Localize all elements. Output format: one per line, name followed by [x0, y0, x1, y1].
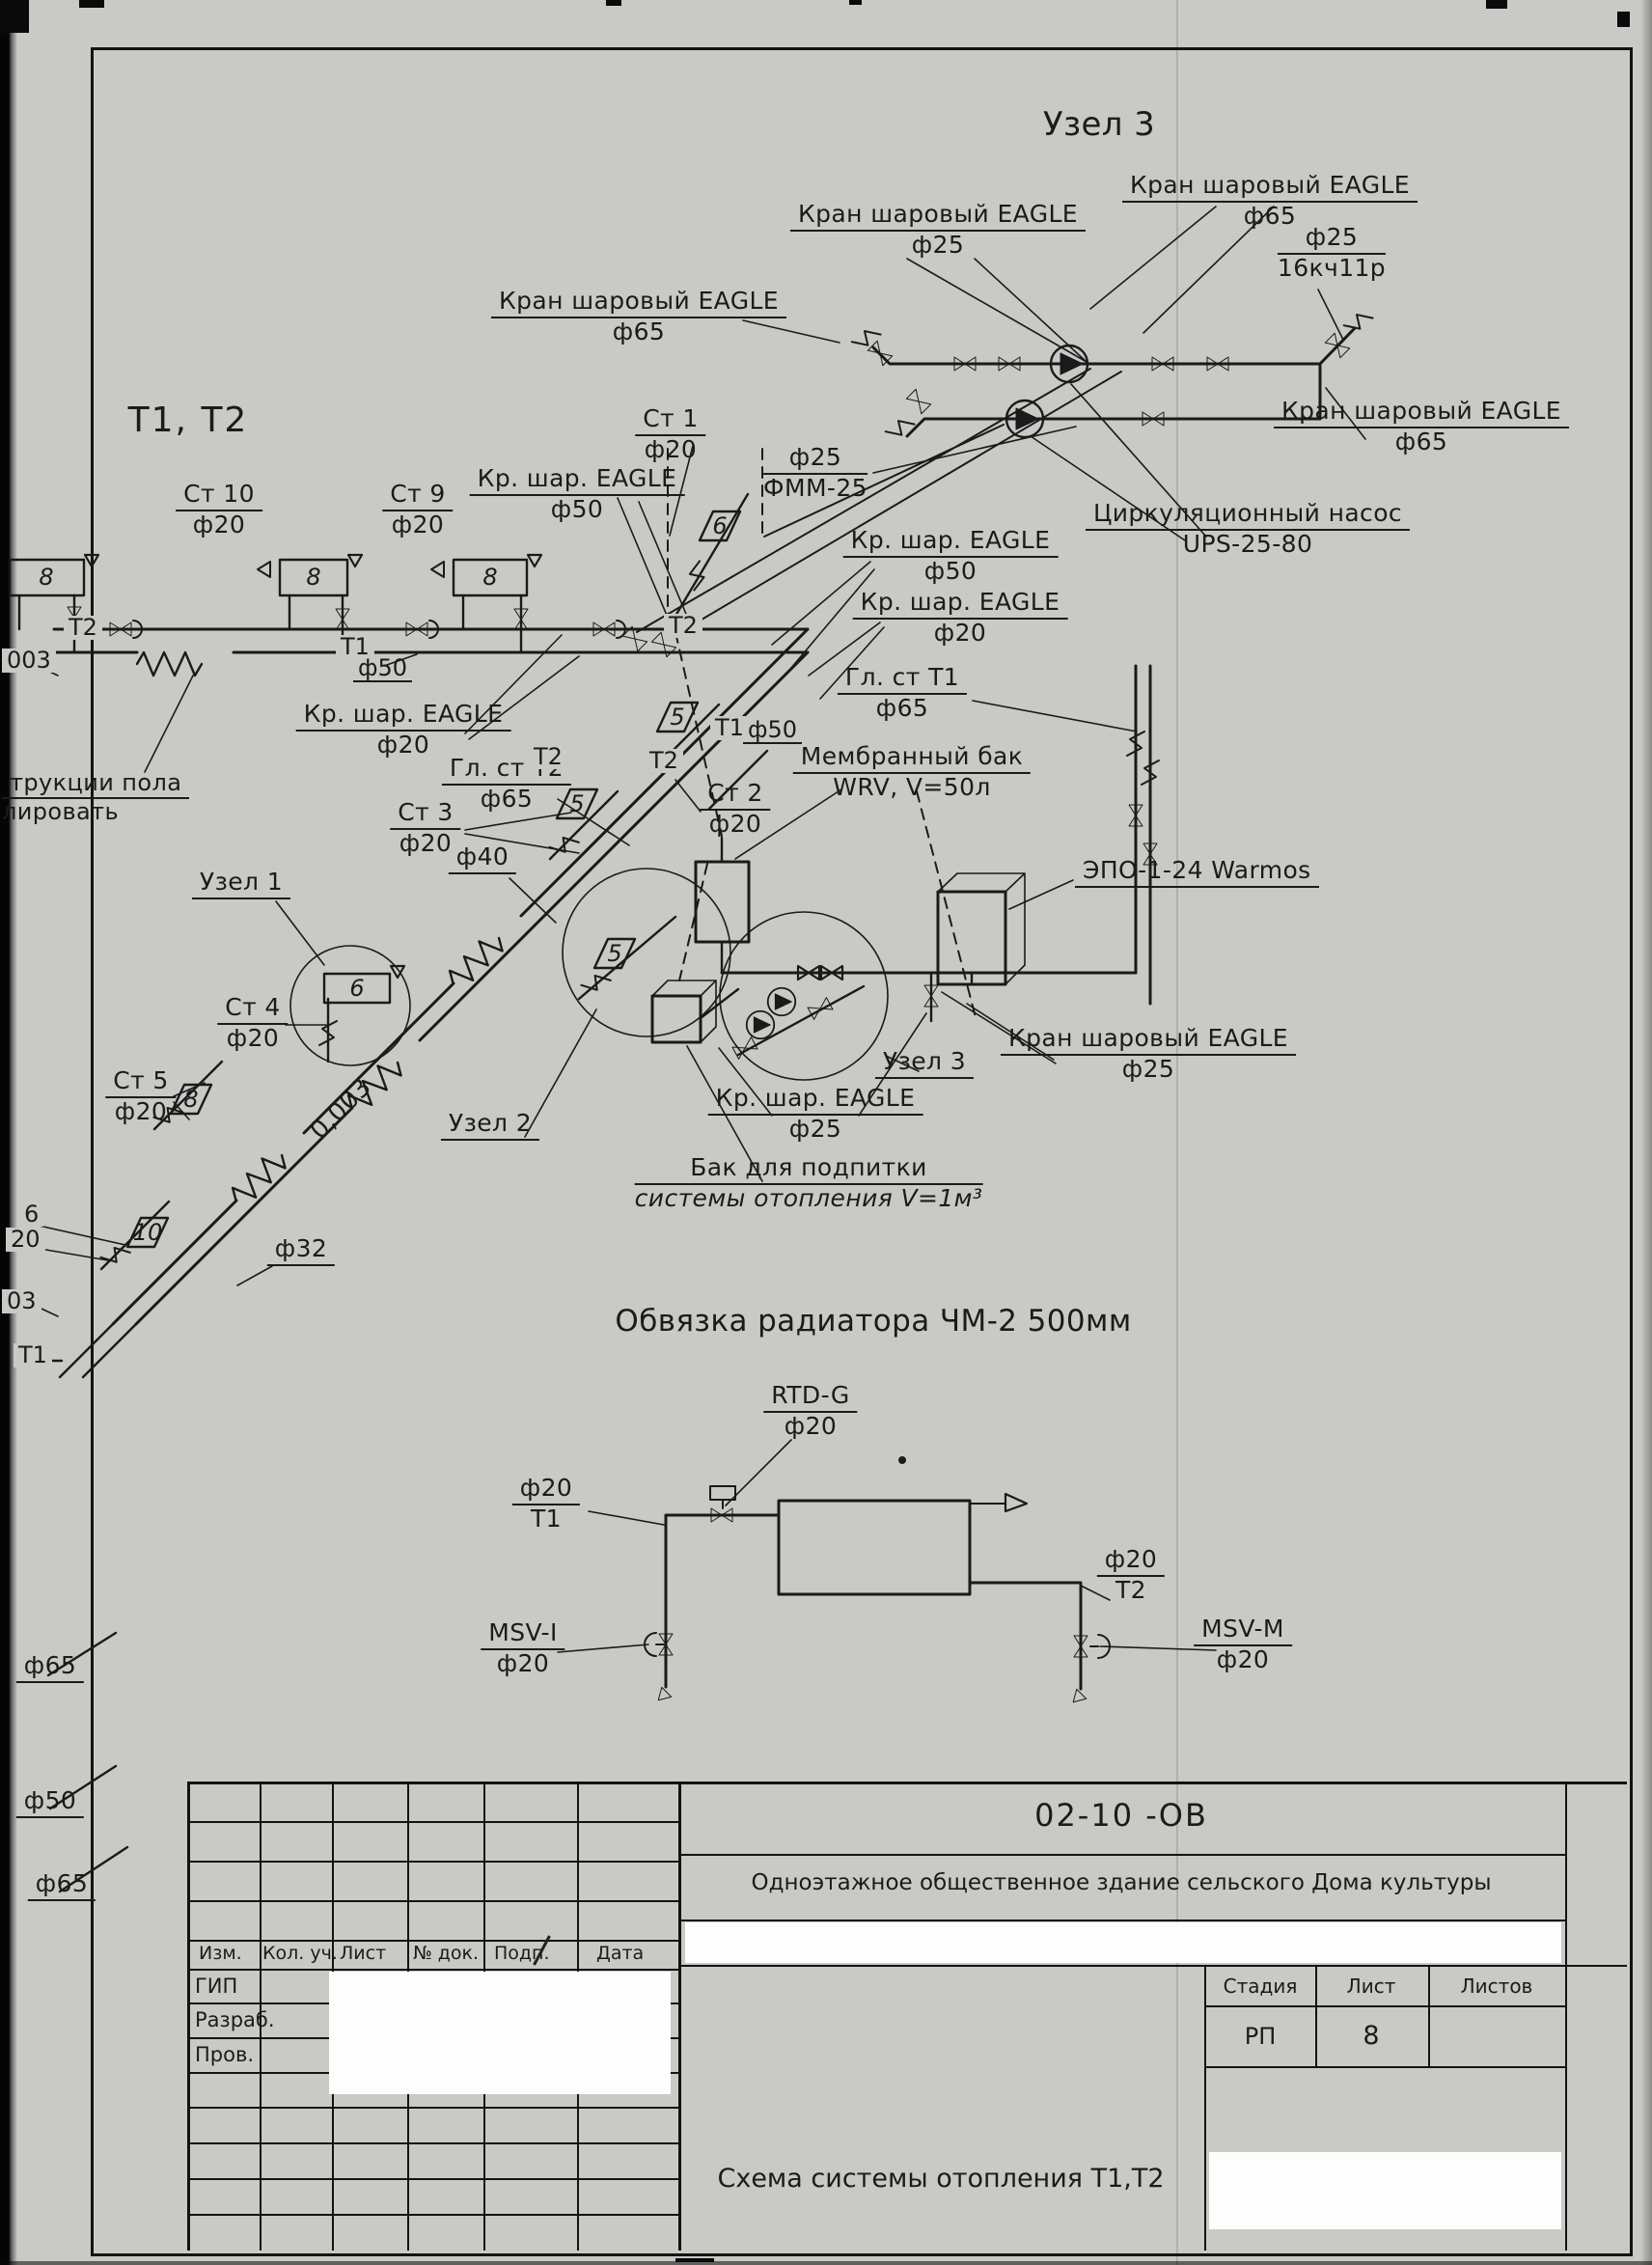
stack-number-5: 5: [670, 704, 684, 731]
drawing-title: Схема системы отопления Т1,Т2: [717, 2164, 1164, 2194]
tag-f50-b: ф50: [743, 718, 802, 744]
label-stack-2: Ст 2 ф20: [700, 780, 770, 838]
col-list: Лист: [340, 1943, 386, 1964]
label-msv-i: MSV-I ф20: [481, 1619, 564, 1677]
tag-f50: ф50: [353, 656, 412, 682]
label-stack-10: Ст 10 ф20: [176, 481, 262, 539]
cutoff-stack6: 6: [19, 1202, 43, 1227]
tag-t1-c: Т1: [14, 1343, 52, 1367]
label-f20-t2: ф20 Т2: [1097, 1546, 1165, 1604]
cutoff-stack6-dn20: 20: [6, 1228, 45, 1252]
label-stack-4: Ст 4 ф20: [217, 994, 288, 1052]
label-ball-valve-25-mid: Кран шаровый EAGLE ф25: [1001, 1025, 1296, 1083]
stage-header: Стадия: [1224, 1975, 1298, 1998]
role-gip: ГИП: [195, 1975, 237, 1998]
label-ball-valve-65-right: Кран шаровый EAGLE ф65: [1274, 398, 1569, 456]
label-f20-t1: ф20 Т1: [512, 1475, 580, 1533]
label-ball-valve-65-left: Кран шаровый EAGLE ф65: [491, 288, 786, 345]
label-uzel-3-circle: Узел 3: [875, 1048, 974, 1079]
label-ball-valve-20-left: Кр. шар. EAGLE ф20: [296, 701, 511, 759]
label-dn40: ф40: [449, 843, 516, 874]
tag-t2-d: Т2: [645, 749, 683, 773]
label-dn65-a: ф65: [16, 1652, 84, 1683]
radiator-detail-title: Обвязка радиатора ЧМ-2 500мм: [615, 1305, 1131, 1339]
t1-t2-section-title: Т1, Т2: [128, 401, 249, 440]
label-fmm-25: ф25 ФММ-25: [763, 444, 867, 502]
uzel3-top-assembly: [637, 307, 1373, 635]
label-dn50-b: ф50: [16, 1787, 84, 1818]
redaction-box-corner: [1209, 2152, 1561, 2229]
scanned-heating-schematic-sheet: { "titles": { "uzel3_top": "Узел 3", "t1…: [0, 0, 1652, 2265]
boiler-room-piping: [48, 632, 1159, 1892]
cutoff-slope-a: 003: [2, 649, 56, 673]
stack-number-10: 10: [133, 1219, 163, 1246]
label-ball-valve-50-b: Кр. шар. EAGLE ф50: [843, 527, 1059, 585]
label-ball-valve-65-top-right: Кран шаровый EAGLE ф65: [1122, 172, 1418, 230]
label-ball-valve-25-top: Кран шаровый EAGLE ф25: [790, 201, 1086, 259]
radiator-sections-8: 8: [306, 564, 320, 591]
label-msv-m: MSV-M ф20: [1194, 1616, 1292, 1673]
label-epo-warmos: ЭПО-1-24 Warmos: [1075, 857, 1319, 888]
stage-value: РП: [1245, 2023, 1277, 2050]
col-koluch: Кол. уч.: [262, 1943, 338, 1964]
radiator-sections-8: 8: [482, 564, 497, 591]
label-main-stack-t1: Гл. ст Т1 ф65: [838, 664, 967, 722]
label-stack-9: Ст 9 ф20: [382, 481, 453, 539]
sheets-header: Листов: [1461, 1975, 1533, 1998]
tag-t2-c: Т2: [529, 745, 567, 769]
label-membrane-tank: Мембранный бак WRV, V=50л: [793, 743, 1031, 801]
tag-t2: Т2: [64, 616, 102, 640]
object-title: Одноэтажное общественное здание сельског…: [751, 1870, 1491, 1895]
sheet-number: 8: [1363, 2021, 1379, 2051]
label-ball-valve-25-small: Кр. шар. EAGLE ф25: [708, 1085, 923, 1143]
doc-number: 02-10 -ОВ: [1034, 1797, 1208, 1834]
label-circulation-pump: Циркуляционный насос UPS-25-80: [1086, 500, 1410, 558]
role-prov: Пров.: [195, 2043, 254, 2066]
label-uzel-2: Узел 2: [441, 1110, 539, 1141]
sheet-header: Лист: [1347, 1975, 1396, 1998]
col-ndok: № док.: [413, 1943, 479, 1964]
redaction-box-names: [329, 1972, 671, 2094]
label-valve-16kch11r: ф25 16кч11р: [1278, 224, 1386, 282]
label-uzel-1: Узел 1: [192, 869, 290, 899]
stack-number-5: 5: [607, 940, 621, 967]
label-stack-5: Ст 5 ф20: [105, 1067, 176, 1125]
stack-number-5: 5: [569, 790, 584, 817]
cutoff-slope-b: 03: [2, 1289, 41, 1313]
label-makeup-tank: Бак для подпитки системы отопления V=1м³: [635, 1154, 983, 1212]
label-ball-valve-20-right: Кр. шар. EAGLE ф20: [853, 589, 1068, 647]
label-stack-1: Ст 1 ф20: [635, 405, 705, 463]
uzel3-title: Узел 3: [1043, 106, 1155, 144]
label-rtd-g: RTD-G ф20: [763, 1382, 857, 1440]
cutoff-note-floor: трукции пола лировать: [2, 770, 189, 826]
radiator-sections-6: 6: [349, 975, 364, 1002]
label-dn32: ф32: [267, 1235, 335, 1266]
radiator-detail: [645, 1457, 1110, 1707]
tag-t2-b: Т2: [664, 614, 702, 638]
col-data: Дата: [596, 1943, 644, 1964]
radiator-sections-8: 8: [39, 564, 53, 591]
role-razrab: Разраб.: [195, 2008, 275, 2031]
redaction-box-strip: [685, 1922, 1561, 1963]
label-ball-valve-50-a: Кр. шар. EAGLE ф50: [470, 465, 685, 523]
stack-number-8: 8: [183, 1086, 198, 1113]
label-dn65-c: ф65: [28, 1870, 96, 1901]
stack-number-6: 6: [712, 512, 727, 539]
col-izm: Изм.: [199, 1943, 242, 1964]
